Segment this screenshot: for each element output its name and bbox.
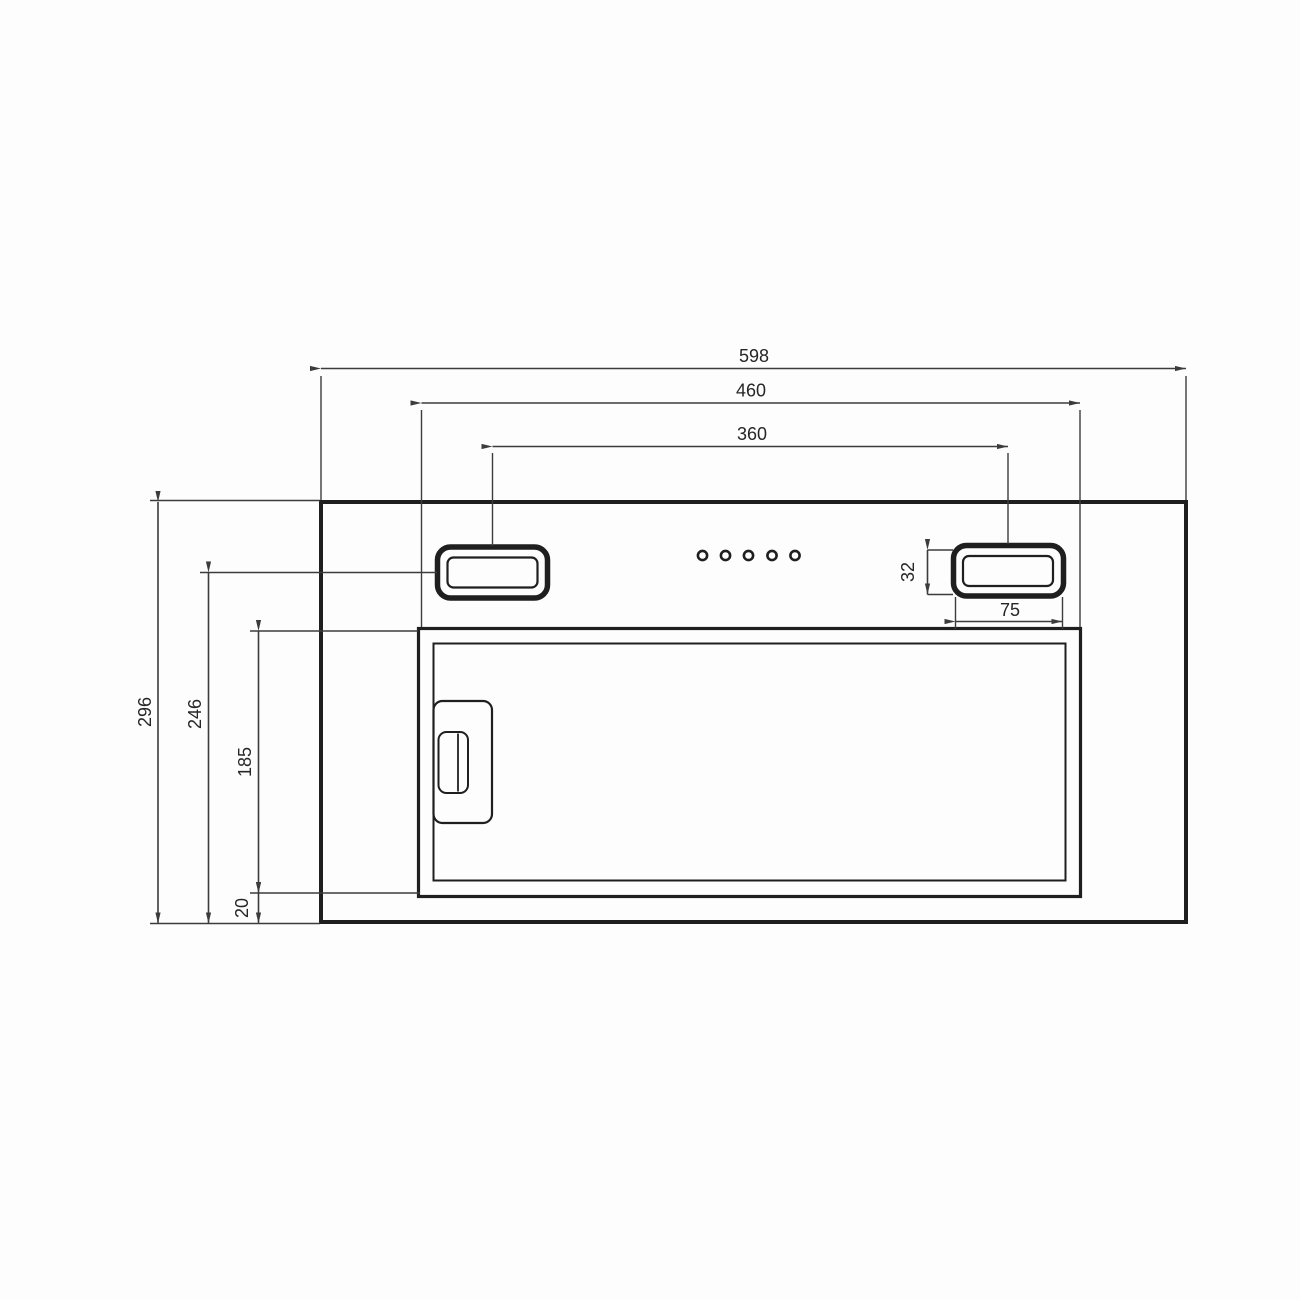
bracket-left-outer (438, 547, 548, 598)
dim-overall-height-label: 296 (135, 697, 155, 727)
hood-body-outline (321, 502, 1186, 922)
dim-panel-bottom-offset: 20 (232, 893, 259, 924)
dim-overall-height: 296 (135, 501, 320, 924)
filter-panel-outer-frame (419, 629, 1081, 897)
dim-bracket-spacing-label: 360 (737, 424, 767, 444)
dim-overall-width: 598 (321, 346, 1186, 500)
bracket-left-inner (448, 558, 538, 588)
cooker-hood-dimension-drawing: 598 460 360 32 75 (0, 0, 1300, 1300)
dim-bracket-width-label: 75 (1000, 600, 1020, 620)
dim-bracket-height: 32 (898, 550, 953, 595)
handle-tab (434, 701, 493, 823)
dim-bracket-width: 75 (956, 597, 1063, 629)
control-button-4 (767, 551, 776, 560)
hood-body (321, 502, 1186, 922)
dim-panel-height-label: 185 (235, 747, 255, 777)
filter-panel (419, 629, 1081, 897)
control-buttons (698, 551, 800, 560)
dim-panel-bottom-offset-label: 20 (232, 898, 252, 918)
control-button-1 (698, 551, 707, 560)
dim-bracket-center-label: 246 (185, 699, 205, 729)
control-button-3 (744, 551, 753, 560)
bracket-right-outer (954, 546, 1064, 597)
dimension-drawing-canvas: 598 460 360 32 75 (0, 0, 1300, 1300)
mounting-bracket-left (438, 547, 548, 598)
dim-panel-height: 185 (235, 631, 420, 893)
bracket-right-inner (963, 556, 1053, 586)
dim-cutout-width-label: 460 (736, 381, 766, 401)
dim-bracket-height-label: 32 (898, 562, 918, 582)
control-button-5 (790, 551, 799, 560)
dim-bracket-center-height: 246 (185, 573, 437, 924)
filter-panel-inner-frame (434, 644, 1066, 881)
dim-overall-width-label: 598 (739, 346, 769, 366)
mounting-bracket-right (954, 546, 1064, 597)
control-button-2 (721, 551, 730, 560)
dim-bracket-spacing: 360 (493, 424, 1009, 546)
handle-grip (439, 732, 469, 793)
